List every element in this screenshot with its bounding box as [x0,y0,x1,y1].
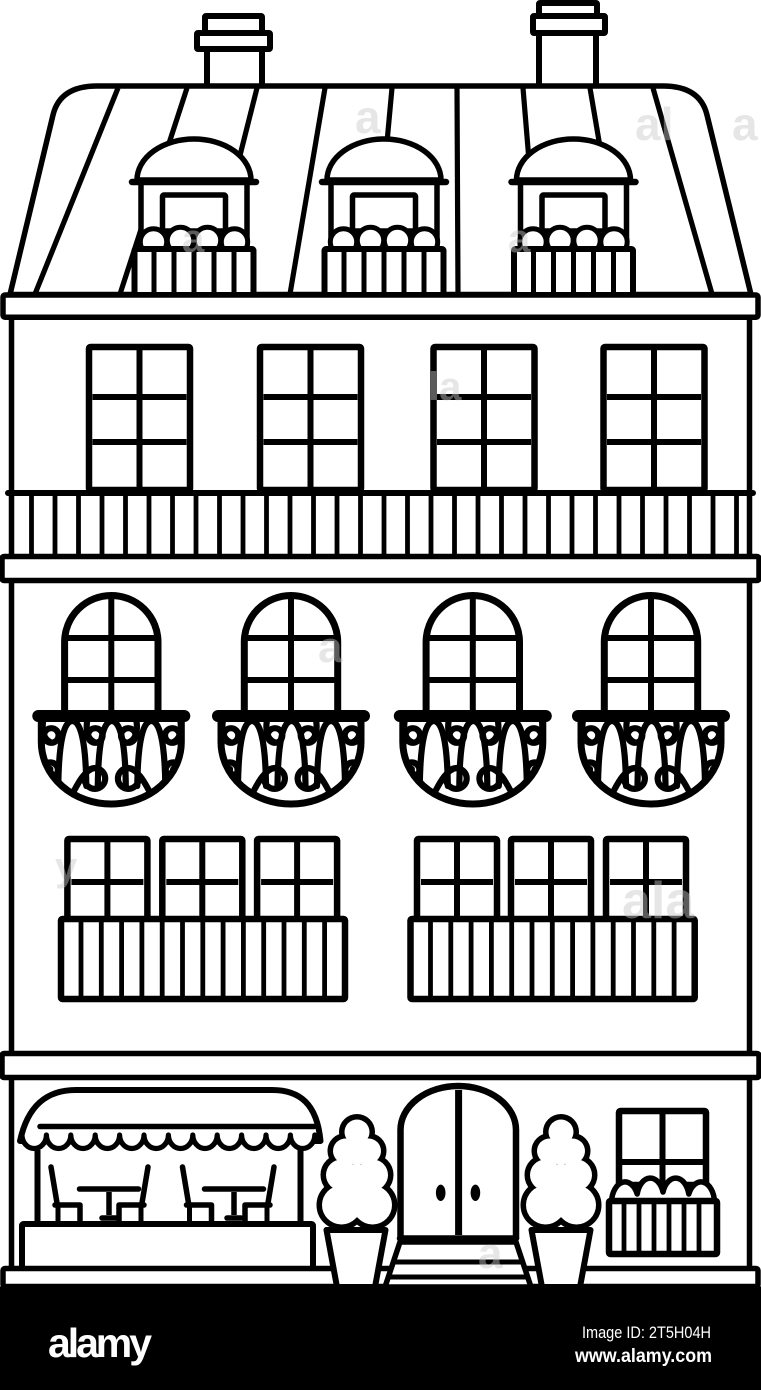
svg-text:a: a [355,91,381,143]
svg-text:ala: ala [622,872,695,930]
svg-text:www.alamy.com: www.alamy.com [574,1345,712,1367]
svg-text:a: a [182,217,205,261]
svg-text:a: a [508,217,531,261]
svg-text:a: a [478,1229,503,1278]
svg-text:al: al [635,98,673,150]
svg-text:y: y [55,845,78,889]
svg-text:a: a [318,623,343,672]
svg-text:la: la [428,365,462,409]
svg-text:a: a [732,98,758,150]
svg-text:Image ID: 2T5H04H: Image ID: 2T5H04H [582,1324,711,1342]
svg-text:alamy: alamy [48,1320,152,1366]
